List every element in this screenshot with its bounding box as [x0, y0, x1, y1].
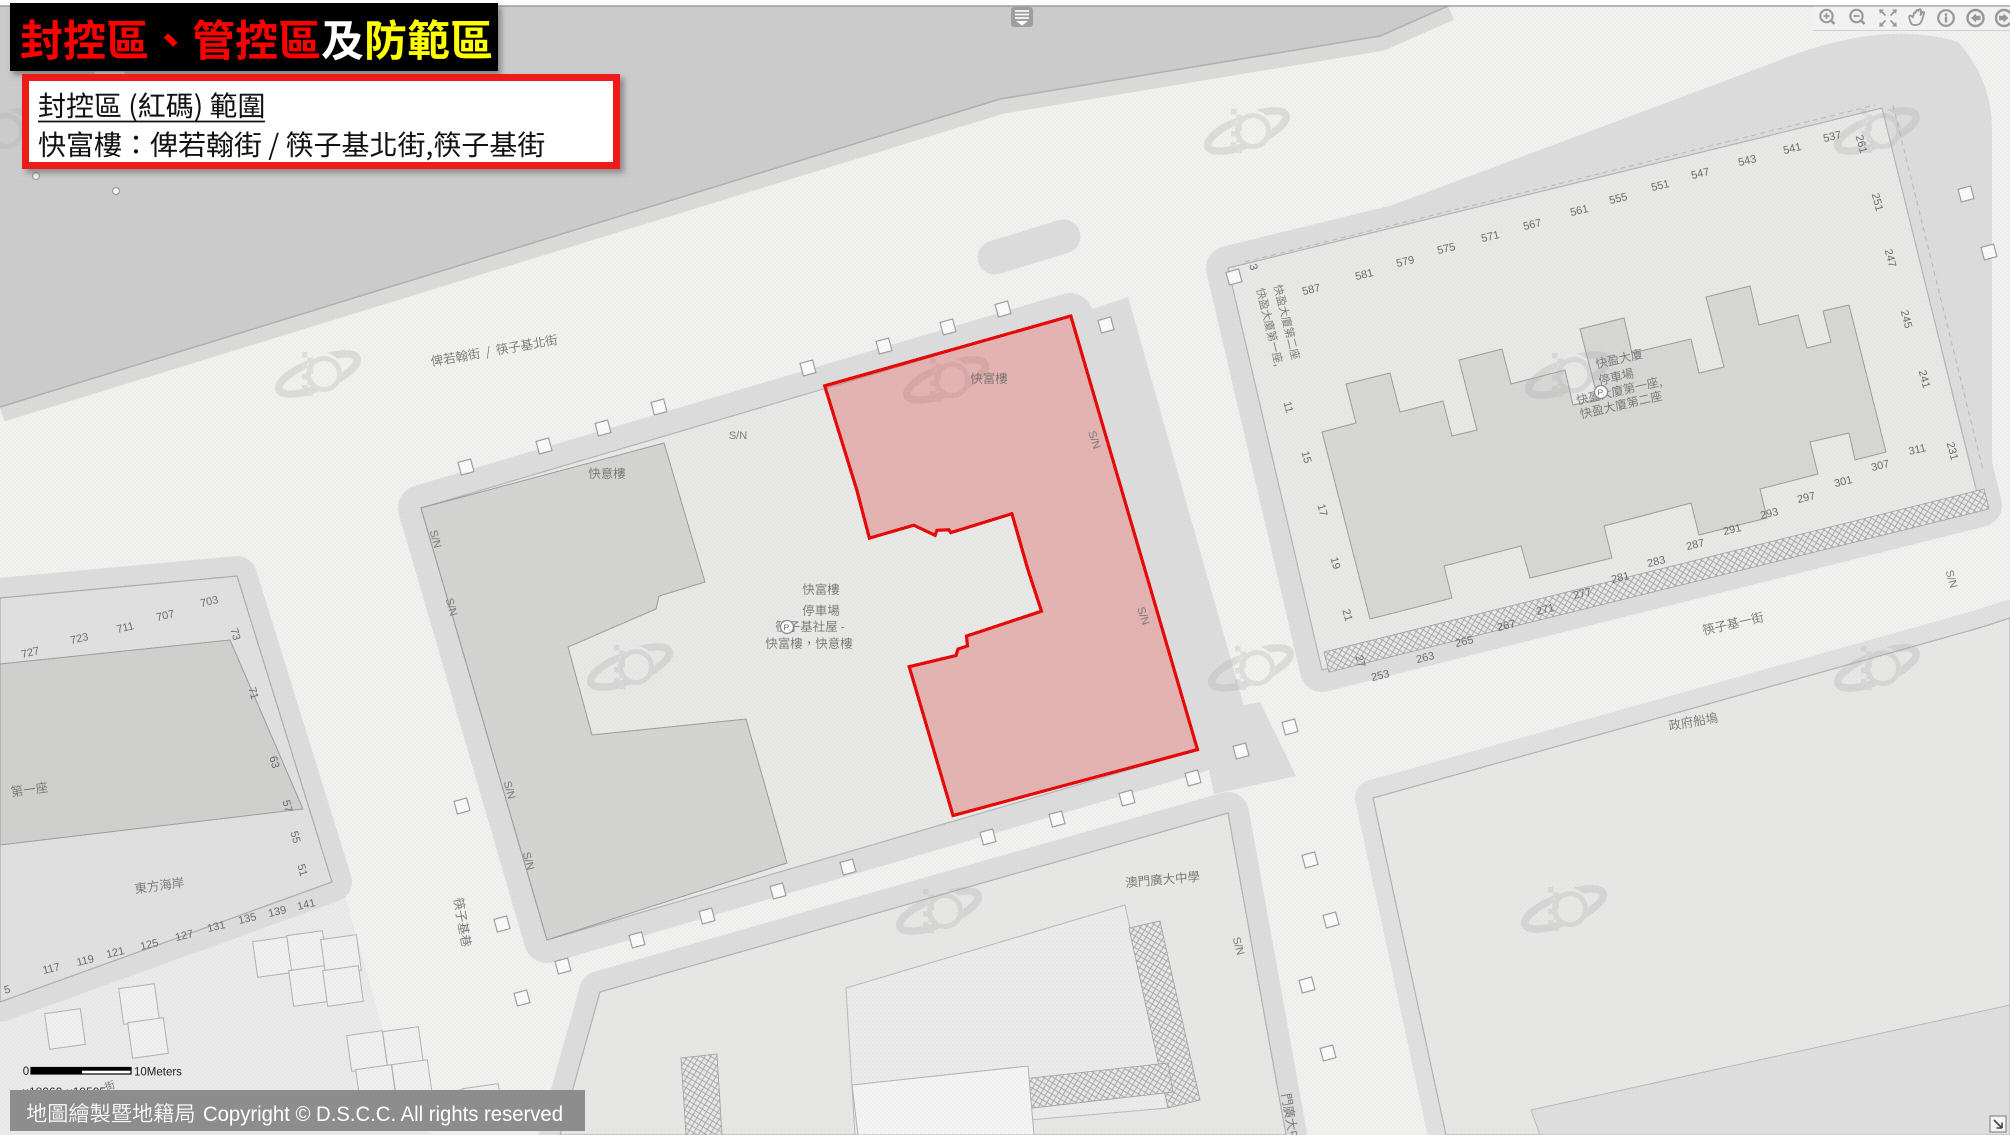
svg-text:0: 0 [23, 1066, 29, 1078]
svg-text:Copyright © D.S.C.C. All right: Copyright © D.S.C.C. All rights reserved [203, 1103, 563, 1126]
svg-text:10Meters: 10Meters [134, 1067, 182, 1079]
